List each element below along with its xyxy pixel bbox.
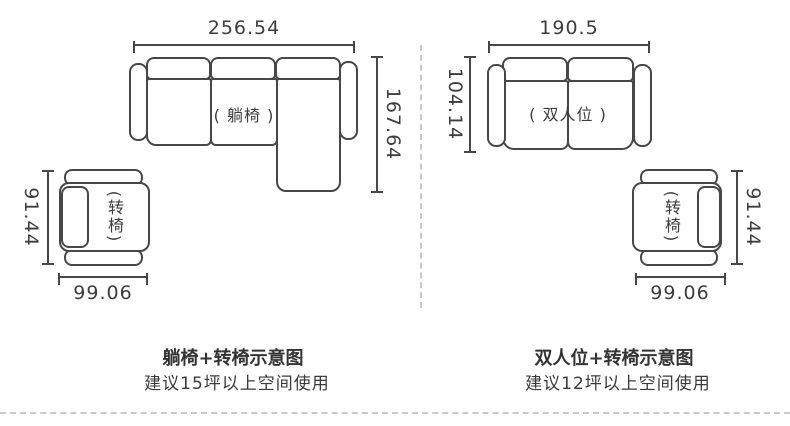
left-caption-subtitle: 建议15坪以上空间使用 (85, 369, 389, 394)
dimension-tick (42, 263, 54, 265)
left-sofa-seat-label: ( 躺椅 ) (174, 102, 314, 126)
dimension-tick (488, 41, 490, 53)
right-chair-width-dimension-line (635, 276, 726, 278)
left-caption-title: 躺椅+转椅示意图 (83, 344, 383, 370)
dimension-tick (371, 191, 383, 193)
left-chair-height-label: 91.44 (20, 187, 42, 246)
sofa-chaise-section (276, 78, 341, 192)
left-sofa-height-label: 167.64 (382, 88, 404, 160)
left-chair-width-dimension-line (58, 276, 148, 278)
dimension-tick (353, 41, 355, 53)
sofa-back-cushion (502, 57, 568, 82)
dimension-tick (371, 56, 383, 58)
left-chair-height-dimension-line (47, 170, 49, 265)
bottom-divider-line (0, 412, 790, 414)
right-chair-label: (转椅) (659, 191, 683, 243)
dimension-tick (42, 170, 54, 172)
left-sofa-height-dimension-line (376, 56, 378, 193)
right-chair-width-label: 99.06 (620, 282, 740, 304)
right-caption-title: 双人位+转椅示意图 (464, 344, 764, 370)
right-sofa-height-label: 104.14 (444, 68, 466, 140)
right-sofa-width-dimension-line (488, 44, 650, 46)
right-chair-height-dimension-line (736, 170, 738, 265)
furniture-dimension-diagram: 256.54 ( 躺椅 ) 167.64 (0, 0, 790, 426)
sofa-back-cushion (210, 57, 276, 80)
sofa-armrest-right (339, 61, 358, 140)
right-caption-subtitle: 建议12坪以上空间使用 (466, 369, 770, 394)
right-sofa-width-label: 190.5 (488, 17, 650, 39)
dimension-tick (731, 263, 743, 265)
sofa-armrest-left (129, 63, 148, 141)
sofa-back-cushion (275, 57, 341, 80)
dimension-tick (464, 56, 476, 58)
sofa-back-cushion (146, 57, 211, 80)
chair-back-cushion (61, 186, 89, 248)
left-chair-label: (转椅) (102, 191, 126, 243)
sofa-back-cushion (567, 57, 634, 82)
chair-back-cushion (697, 186, 721, 248)
left-sofa-width-label: 256.54 (133, 17, 355, 39)
dimension-tick (464, 151, 476, 153)
dimension-tick (133, 41, 135, 53)
right-chair-height-label: 91.44 (742, 187, 764, 246)
right-sofa-seat-label: ( 双人位 ) (493, 101, 643, 125)
left-chair-width-label: 99.06 (43, 282, 163, 304)
dimension-tick (731, 170, 743, 172)
left-sofa-width-dimension-line (133, 44, 355, 46)
center-divider-line (420, 45, 422, 308)
right-sofa-height-dimension-line (469, 56, 471, 153)
dimension-tick (648, 41, 650, 53)
